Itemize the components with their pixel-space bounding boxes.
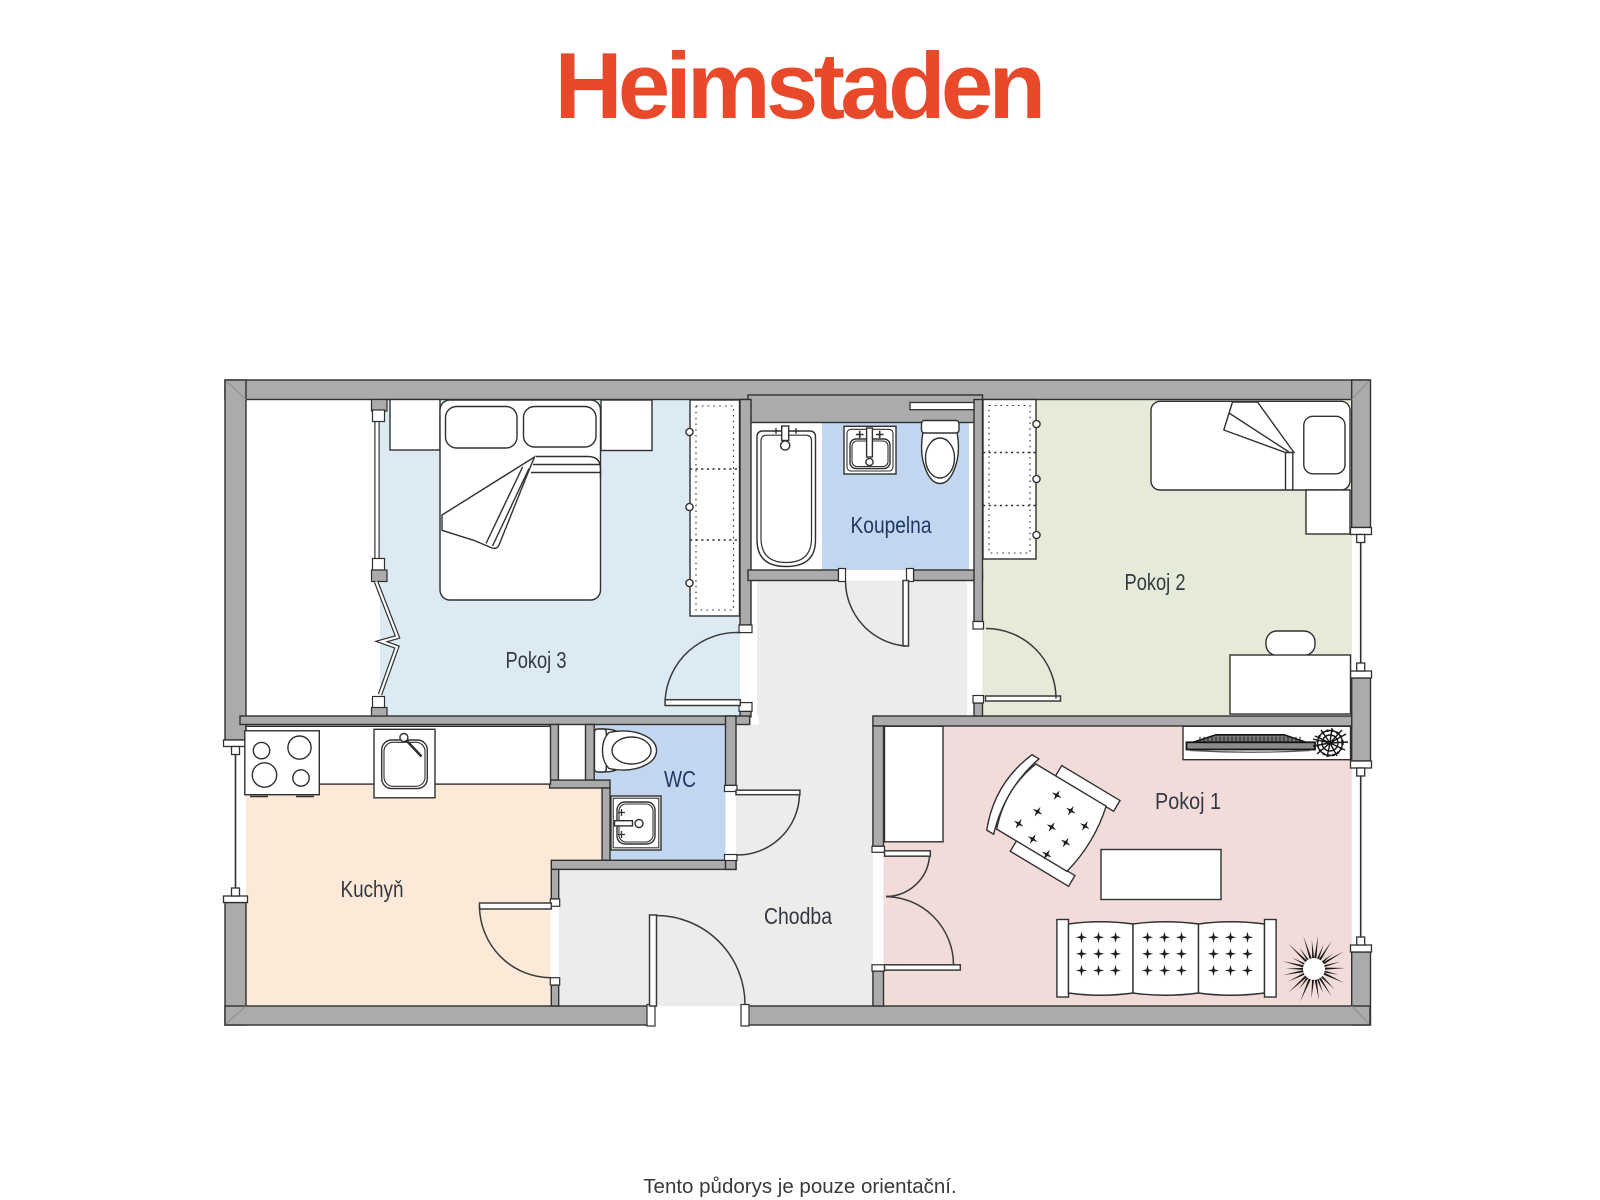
svg-text:Kuchyň: Kuchyň (341, 876, 404, 902)
svg-text:Tento půdorys je pouze orienta: Tento půdorys je pouze orientační. (643, 1175, 956, 1198)
svg-text:WC: WC (664, 766, 696, 792)
svg-text:Koupelna: Koupelna (851, 512, 933, 538)
svg-text:Pokoj 1: Pokoj 1 (1155, 788, 1221, 814)
svg-text:Pokoj 2: Pokoj 2 (1125, 569, 1186, 595)
svg-text:Pokoj 3: Pokoj 3 (506, 647, 567, 673)
svg-text:Chodba: Chodba (764, 903, 833, 929)
svg-text:Heimstaden: Heimstaden (555, 33, 1042, 138)
